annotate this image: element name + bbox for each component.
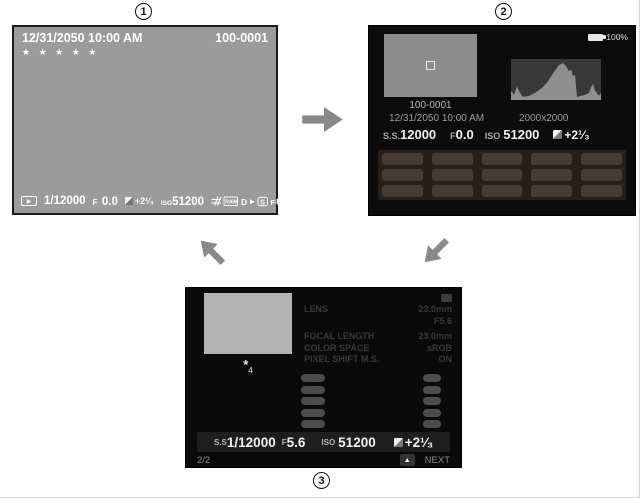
screen1-frame-number: 100-0001 <box>215 31 268 45</box>
aperture-value: 5.6 <box>287 435 306 450</box>
drive-mode-icon: S <box>258 197 268 206</box>
screen3-exif-bar: S.S1/12000 F5.6 ISO51200 +2¹⁄₃ <box>197 432 450 452</box>
iso-label: ISO <box>485 131 501 141</box>
screen1-iso: ISO51200 <box>161 192 204 210</box>
screen1-datetime: 12/31/2050 10:00 AM <box>22 31 142 45</box>
disabled-setting-slot <box>482 153 523 165</box>
shutter-label: S.S <box>214 438 227 447</box>
screen-standard-playback: 12/31/2050 10:00 AM 100-0001 ★ ★ ★ ★ ★ ▶… <box>12 25 278 215</box>
rating-stars: ★ ★ ★ ★ ★ <box>22 47 99 58</box>
info-row: F5.6 <box>304 316 452 328</box>
disabled-pill <box>423 409 441 417</box>
screen1-ev-comp: +2¹⁄₃ <box>125 196 154 206</box>
disabled-info-pills-left <box>301 374 325 432</box>
playback-mode-icon: ▶ <box>21 196 37 206</box>
disabled-setting-slot <box>482 185 523 197</box>
step-1-badge: 1 <box>135 3 152 20</box>
screen1-status-bar: ▶ 1/12000 F 0.0 +2¹⁄₃ ISO51200 RAW D <box>21 194 271 208</box>
info-row: LENS23.0mm <box>304 304 452 316</box>
screen2-datetime: 12/31/2050 10:00 AM <box>389 113 484 124</box>
ev-value: +2¹⁄₃ <box>405 435 433 450</box>
manual-figure-playback-displays: 1 2 3 12/31/2050 10:00 AM 100-0001 ★ ★ ★… <box>0 0 640 498</box>
battery-icon: F <box>271 197 289 206</box>
focus-point-icon <box>426 61 435 70</box>
disabled-setting-slot <box>382 153 423 165</box>
svg-text:D: D <box>241 196 247 206</box>
disabled-info-pills-right <box>423 374 441 432</box>
svg-text:RAW: RAW <box>225 199 237 205</box>
disabled-pill <box>301 420 325 428</box>
disabled-setting-slot <box>581 185 622 197</box>
disabled-pill <box>301 386 325 394</box>
ev-comp-icon <box>125 197 133 205</box>
footnote-marker: *4 <box>204 356 292 375</box>
svg-text:S: S <box>260 199 265 206</box>
aperture-value: 0.0 <box>456 127 474 142</box>
disabled-setting-slot <box>581 153 622 165</box>
ev-comp-icon <box>553 130 562 139</box>
shutter-value: 1/12000 <box>227 435 276 450</box>
screen2-frame-number: 100-0001 <box>384 100 477 111</box>
step-2-number: 2 <box>500 6 506 18</box>
iso-value: 51200 <box>503 127 539 142</box>
screen3-footer: 2/2 ▲ NEXT <box>197 454 450 466</box>
iso-value: 51200 <box>338 435 376 450</box>
info-row: PIXEL SHIFT M.S.ON <box>304 354 452 366</box>
disabled-setting-slot <box>432 153 473 165</box>
screen2-pixel-dimensions: 2000x2000 <box>519 113 569 124</box>
screen1-aperture: F 0.0 <box>93 192 118 210</box>
arrow-up-left-icon <box>200 232 232 264</box>
screen2-exif-row: S.S.12000 F0.0 ISO51200 +2¹⁄₃ <box>383 127 627 142</box>
shutter-label: S.S. <box>383 131 400 141</box>
step-3-badge: 3 <box>313 472 330 489</box>
histogram-shape <box>511 63 601 100</box>
next-label: NEXT <box>425 455 450 466</box>
disabled-setting-slot <box>432 185 473 197</box>
disabled-setting-slot <box>531 185 572 197</box>
dynamic-range-icon: D <box>241 196 255 206</box>
disabled-pill <box>423 420 441 428</box>
arrow-down-left-icon <box>416 231 448 263</box>
histogram-panel <box>511 59 601 100</box>
up-button-icon: ▲ <box>400 454 415 466</box>
next-hint: ▲ NEXT <box>400 454 450 466</box>
ev-value: +2¹⁄₃ <box>564 128 589 142</box>
disabled-pill <box>301 397 325 405</box>
step-3-number: 3 <box>318 475 324 487</box>
screen1-header: 12/31/2050 10:00 AM 100-0001 <box>22 31 268 45</box>
disabled-setting-slot <box>432 169 473 181</box>
battery-percent: 100% <box>606 32 628 42</box>
ev-comp-icon <box>394 438 403 447</box>
battery-icon <box>588 34 603 41</box>
iso-label: ISO <box>321 438 335 447</box>
disabled-setting-slot <box>382 185 423 197</box>
disabled-setting-slot <box>531 153 572 165</box>
step-2-badge: 2 <box>495 3 512 20</box>
disabled-pill <box>423 386 441 394</box>
screen1-setting-icons: RAW D S F <box>211 196 289 207</box>
image-quality-raw-icon: RAW <box>224 197 238 206</box>
disabled-setting-slot <box>382 169 423 181</box>
photo-thumbnail <box>204 293 292 354</box>
disabled-setting-slot <box>482 169 523 181</box>
disabled-pill <box>423 397 441 405</box>
screen1-shutter-speed: 1/12000 <box>44 195 86 207</box>
disabled-pill <box>423 374 441 382</box>
info-row: FOCAL LENGTH23.0mm <box>304 331 452 343</box>
shutter-value: 12000 <box>400 127 436 142</box>
memory-card-icon <box>441 294 452 302</box>
disabled-setting-slot <box>581 169 622 181</box>
film-simulation-icon <box>212 197 222 206</box>
battery-status: 100% <box>588 32 628 42</box>
photo-thumbnail <box>384 34 477 97</box>
screen-info-display: 100% 100-0001 12/31/2050 10:00 AM 2000x2… <box>368 25 636 216</box>
disabled-pill <box>301 374 325 382</box>
svg-text:F: F <box>271 197 276 206</box>
disabled-settings-grid <box>378 150 626 200</box>
exif-info-table: LENS23.0mm F5.6 FOCAL LENGTH23.0mm COLOR… <box>304 304 452 366</box>
info-row: COLOR SPACEsRGB <box>304 343 452 355</box>
disabled-setting-slot <box>531 169 572 181</box>
screen-detail-info: *4 LENS23.0mm F5.6 FOCAL LENGTH23.0mm CO… <box>185 287 462 468</box>
arrow-right-icon <box>302 106 344 133</box>
step-1-number: 1 <box>140 6 146 18</box>
disabled-pill <box>301 409 325 417</box>
page-indicator: 2/2 <box>197 455 210 466</box>
